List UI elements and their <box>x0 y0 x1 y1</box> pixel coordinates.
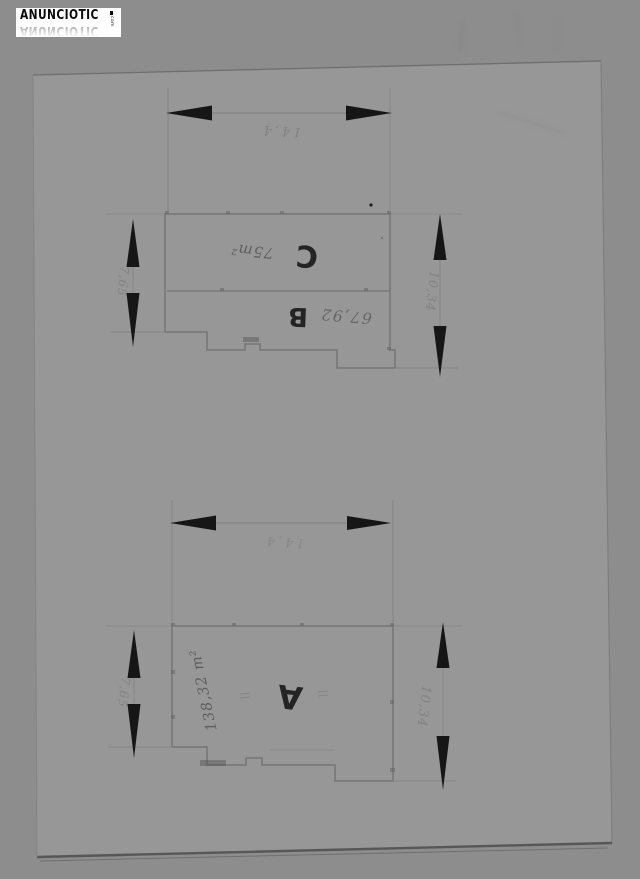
lower-width-label: 14,4 <box>263 533 305 551</box>
lower-door-blob <box>200 760 226 766</box>
floorplan-scan: 14,4 C 75m² B 67,92 <box>0 0 640 879</box>
paper-sheet <box>33 14 612 861</box>
paper-surface <box>33 61 612 857</box>
ink-speck <box>381 237 383 239</box>
anunciotic-watermark: ANUNCIOTIC com ANUNCIOTIC <box>16 8 121 37</box>
upper-door-blob <box>243 337 259 342</box>
watermark-tld-text: com <box>106 15 117 26</box>
scanned-floorplan-page: 14,4 C 75m² B 67,92 <box>0 0 640 879</box>
room-c-label: C <box>295 237 320 274</box>
watermark-brand-text: ANUNCIOTIC <box>20 10 99 21</box>
ink-dot <box>369 203 372 206</box>
watermark-dotcom: com <box>106 10 117 27</box>
watermark-reflection: ANUNCIOTIC <box>20 25 100 36</box>
upper-width-label: 14,4 <box>260 122 302 139</box>
room-a-label: A <box>275 677 304 718</box>
square-dot-icon <box>110 11 114 15</box>
room-b-label: B <box>288 301 309 332</box>
